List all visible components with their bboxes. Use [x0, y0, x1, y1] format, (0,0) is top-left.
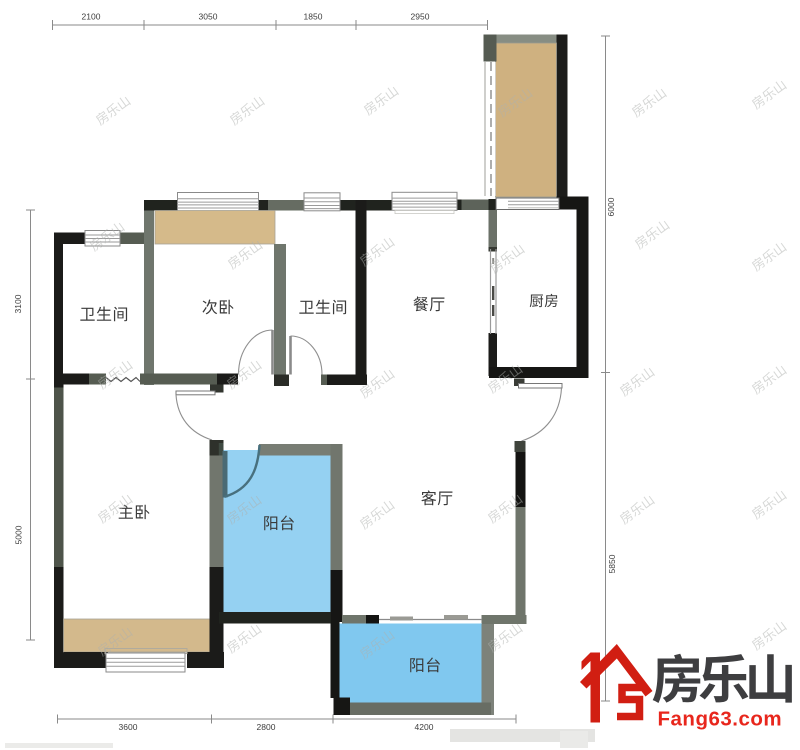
svg-text:5850: 5850 [607, 554, 617, 573]
svg-text:6000: 6000 [606, 197, 616, 216]
svg-text:2100: 2100 [82, 12, 101, 22]
svg-text:2800: 2800 [257, 722, 276, 732]
svg-text:Fang63.com: Fang63.com [658, 708, 783, 731]
svg-text:3050: 3050 [199, 12, 218, 22]
svg-text:5000: 5000 [14, 525, 24, 544]
svg-text:1850: 1850 [304, 12, 323, 22]
svg-text:4200: 4200 [415, 722, 434, 732]
svg-text:2950: 2950 [411, 12, 430, 22]
svg-text:3100: 3100 [13, 294, 23, 313]
svg-text:3600: 3600 [119, 722, 138, 732]
